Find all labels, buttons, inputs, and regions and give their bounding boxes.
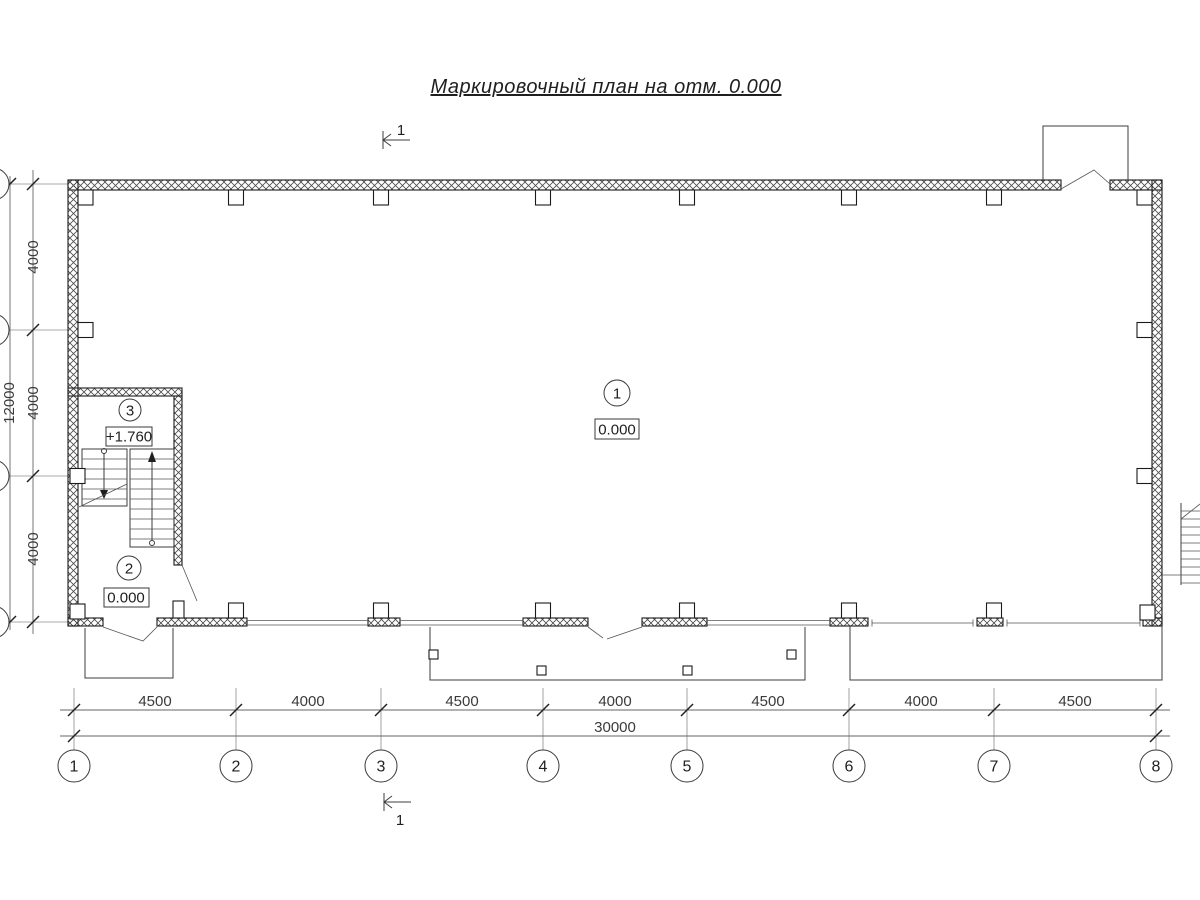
- axis-bubble-3: 3: [365, 750, 397, 782]
- gate-openings: [872, 620, 1140, 627]
- svg-text:3: 3: [377, 759, 386, 776]
- stairwell: [68, 388, 184, 618]
- wall-bottom-pier: [830, 618, 868, 626]
- dim-segment: 4000: [904, 693, 937, 710]
- loading-platform-middle: [429, 627, 805, 680]
- room-number: 2: [125, 561, 133, 578]
- door-stairwell: [182, 565, 197, 601]
- platform-post: [787, 650, 796, 659]
- room-label-3: 3 +1.760: [106, 399, 152, 446]
- svg-text:1: 1: [70, 759, 79, 776]
- room-elevation: 0.000: [598, 422, 636, 439]
- dim-segment: 4000: [291, 693, 324, 710]
- section-mark-bottom-label: 1: [396, 812, 404, 829]
- svg-text:5: 5: [683, 759, 692, 776]
- axis-bubble-7: 7: [978, 750, 1010, 782]
- svg-text:6: 6: [845, 759, 854, 776]
- wall-left: [68, 180, 78, 626]
- dim-segment: 4500: [751, 693, 784, 710]
- entrance-stoop-bottom-left: [85, 628, 173, 678]
- axis-bubbles-bottom: 1 2 3 4 5 6 7 8: [58, 750, 1172, 782]
- wall-right: [1152, 180, 1162, 626]
- dimension-bottom: 4500 4000 4500 4000 4500 4000 4500 30000: [60, 693, 1170, 742]
- room-number: 3: [126, 403, 134, 420]
- dim-segment: 4500: [138, 693, 171, 710]
- stair-flight-up: [130, 449, 174, 547]
- dim-total-bottom: 30000: [594, 719, 636, 736]
- svg-text:8: 8: [1152, 759, 1161, 776]
- axis-bubble-4: 4: [527, 750, 559, 782]
- section-mark-top-label: 1: [397, 122, 405, 139]
- room-label-2: 2 0.000: [104, 556, 149, 607]
- stairwell-wall-right: [174, 396, 182, 565]
- door-top-right: [1061, 170, 1110, 189]
- platform-post: [429, 650, 438, 659]
- wall-bottom-pier: [642, 618, 707, 626]
- room-elevation: +1.760: [106, 429, 152, 446]
- stair-flight-down: [79, 449, 127, 508]
- dim-segment: 4500: [1058, 693, 1091, 710]
- section-mark-top: 1: [383, 122, 410, 149]
- door-bottom-left: [103, 627, 157, 641]
- axis-bubble-5: 5: [671, 750, 703, 782]
- axis-bubble-6: 6: [833, 750, 865, 782]
- exterior-stair: [1162, 503, 1200, 585]
- dim-total-left: 12000: [1, 382, 18, 424]
- drawing-title: Маркировочный план на отм. 0.000: [430, 76, 781, 98]
- axis-bubble-8: 8: [1140, 750, 1172, 782]
- svg-text:2: 2: [232, 759, 241, 776]
- entrance-porch-top: [1043, 126, 1128, 182]
- dim-segment: 4500: [445, 693, 478, 710]
- dim-segment: 4000: [25, 532, 42, 565]
- loading-platform-right: [850, 626, 1162, 680]
- section-mark-bottom: 1: [384, 793, 411, 829]
- dim-segment: 4000: [25, 386, 42, 419]
- wall-bottom-pier: [157, 618, 247, 626]
- room-elevation: 0.000: [107, 590, 145, 607]
- door-bottom-middle: [588, 627, 642, 639]
- room-label-1: 1 0.000: [595, 380, 639, 439]
- wall-bottom-pier: [523, 618, 588, 626]
- axis-bubble-1: 1: [58, 750, 90, 782]
- room-number: 1: [613, 386, 621, 403]
- dim-segment: 4000: [598, 693, 631, 710]
- drawing-sheet: Маркировочный план на отм. 0.000 1 1: [0, 0, 1200, 900]
- svg-text:7: 7: [990, 759, 999, 776]
- stairwell-wall-top: [68, 388, 182, 396]
- platform-post: [537, 666, 546, 675]
- stairwell-door-post: [173, 601, 184, 618]
- axis-bubble-2: 2: [220, 750, 252, 782]
- wall-top-left-segment: [68, 180, 1061, 190]
- wall-bottom-pier: [977, 618, 1003, 626]
- svg-text:4: 4: [539, 759, 548, 776]
- floor-plan-drawing: Маркировочный план на отм. 0.000 1 1: [0, 0, 1200, 900]
- dimension-left: 4000 4000 4000 12000: [1, 170, 42, 634]
- wall-bottom-pier: [368, 618, 400, 626]
- dim-segment: 4000: [25, 240, 42, 273]
- platform-post: [683, 666, 692, 675]
